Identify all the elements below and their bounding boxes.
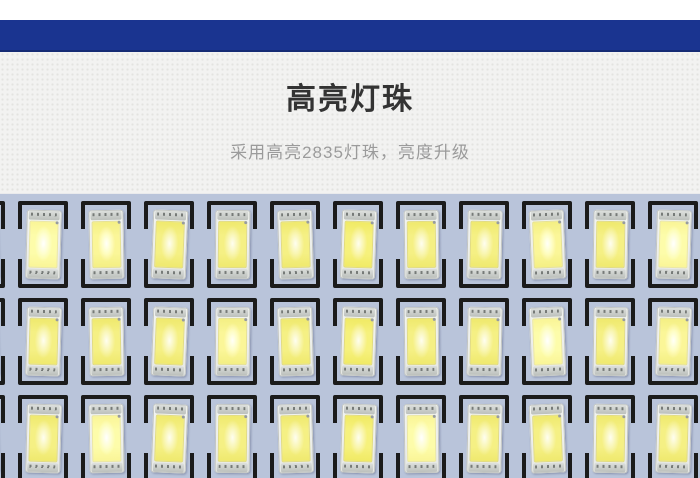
led-phosphor-window	[154, 414, 185, 462]
led-phosphor-window	[217, 221, 246, 268]
headline-section: 高亮灯珠 采用高亮2835灯珠，亮度升级	[0, 52, 700, 193]
silkscreen-gap	[143, 229, 148, 259]
led-bottom-electrode	[216, 366, 247, 375]
silkscreen-gap	[1, 326, 6, 356]
led-chip	[277, 404, 314, 474]
silkscreen-gap	[442, 229, 447, 259]
silkscreen-gap	[127, 326, 132, 356]
product-detail-banner: 高亮灯珠 采用高亮2835灯珠，亮度升级	[0, 0, 700, 478]
led-cell	[522, 201, 572, 288]
led-cell	[459, 395, 509, 478]
led-phosphor-window	[28, 318, 58, 366]
led-phosphor-window	[469, 318, 499, 366]
silkscreen-gap	[64, 229, 69, 259]
led-bottom-electrode	[468, 463, 499, 473]
led-phosphor-window	[28, 415, 58, 463]
silkscreen-gap	[17, 229, 22, 259]
silkscreen-gap	[316, 229, 321, 259]
silkscreen-gap	[316, 423, 321, 453]
led-cell	[270, 298, 320, 385]
led-phosphor-window	[406, 415, 435, 462]
led-cell	[18, 395, 68, 478]
led-cell	[648, 201, 698, 288]
silkscreen-gap	[127, 423, 132, 453]
led-cell	[144, 395, 194, 478]
led-bottom-electrode	[468, 269, 499, 279]
led-polarity-dot	[622, 415, 625, 418]
led-bottom-electrode	[280, 366, 311, 376]
led-top-electrode	[90, 211, 121, 221]
led-top-electrode	[469, 308, 500, 318]
silkscreen-gap	[253, 229, 258, 259]
led-polarity-dot	[370, 318, 373, 321]
led-cell	[396, 298, 446, 385]
led-top-electrode	[658, 211, 689, 221]
silkscreen-gap	[190, 326, 195, 356]
led-chip	[592, 210, 628, 280]
silkscreen-gap	[395, 423, 400, 453]
silkscreen-gap	[631, 326, 636, 356]
silkscreen-gap	[332, 229, 337, 259]
led-polarity-dot	[432, 415, 435, 418]
led-bottom-electrode	[27, 269, 58, 279]
led-top-electrode	[279, 308, 310, 318]
led-top-electrode	[343, 211, 374, 221]
led-cell	[0, 395, 5, 478]
led-top-electrode	[595, 308, 626, 317]
led-phosphor-window	[217, 415, 246, 462]
led-chip	[655, 307, 692, 377]
silkscreen-gap	[64, 423, 69, 453]
led-top-electrode	[530, 404, 561, 414]
led-bottom-electrode	[27, 463, 58, 473]
led-cell	[585, 201, 635, 288]
led-chip	[150, 209, 188, 279]
silkscreen-gap	[458, 423, 463, 453]
led-polarity-dot	[685, 415, 688, 418]
led-cell	[270, 395, 320, 478]
led-cell	[396, 201, 446, 288]
led-bottom-electrode	[91, 463, 122, 473]
page-subtitle: 采用高亮2835灯珠，亮度升级	[230, 143, 470, 163]
led-chip	[25, 307, 62, 377]
led-bottom-electrode	[216, 269, 247, 278]
silkscreen-gap	[206, 423, 211, 453]
led-chip	[277, 307, 314, 377]
silkscreen-gap	[379, 229, 384, 259]
led-cell	[585, 298, 635, 385]
silkscreen-gap	[190, 229, 195, 259]
silkscreen-gap	[584, 326, 589, 356]
led-phosphor-window	[91, 221, 121, 268]
led-polarity-dot	[55, 318, 58, 321]
led-top-electrode	[595, 405, 626, 414]
silkscreen-gap	[505, 423, 510, 453]
led-top-electrode	[28, 211, 59, 221]
led-chip	[528, 403, 566, 473]
led-phosphor-window	[217, 318, 246, 365]
silkscreen-gap	[694, 423, 699, 453]
silkscreen-gap	[442, 326, 447, 356]
silkscreen-gap	[190, 423, 195, 453]
led-chip	[277, 210, 314, 280]
led-cell	[207, 201, 257, 288]
led-polarity-dot	[432, 318, 435, 321]
led-polarity-dot	[558, 220, 561, 223]
led-phosphor-window	[406, 318, 435, 365]
led-bottom-electrode	[657, 463, 688, 473]
silkscreen-gap	[631, 423, 636, 453]
led-cell	[648, 395, 698, 478]
led-phosphor-window	[154, 220, 185, 268]
led-cell	[522, 395, 572, 478]
silkscreen-gap	[253, 423, 258, 453]
led-top-electrode	[279, 211, 310, 221]
led-bottom-electrode	[406, 269, 437, 278]
silkscreen-gap	[584, 229, 589, 259]
led-polarity-dot	[181, 221, 184, 224]
led-top-electrode	[469, 405, 500, 415]
led-bottom-electrode	[532, 462, 563, 472]
led-top-electrode	[405, 211, 436, 220]
led-cell	[522, 298, 572, 385]
silkscreen-gap	[505, 229, 510, 259]
led-chip	[339, 403, 376, 473]
silkscreen-gap	[17, 423, 22, 453]
silkscreen-gap	[521, 423, 526, 453]
led-top-electrode	[658, 405, 689, 415]
silkscreen-gap	[521, 326, 526, 356]
led-polarity-dot	[432, 221, 435, 224]
led-top-electrode	[343, 405, 374, 415]
silkscreen-gap	[206, 326, 211, 356]
led-chip	[403, 307, 439, 376]
led-bottom-electrode	[594, 269, 625, 278]
silkscreen-gap	[458, 229, 463, 259]
led-cell	[0, 298, 5, 385]
led-bottom-electrode	[91, 366, 122, 376]
led-phosphor-window	[280, 221, 310, 269]
led-chip	[150, 403, 188, 473]
led-polarity-dot	[496, 415, 499, 418]
led-bottom-electrode	[468, 366, 499, 376]
led-top-electrode	[154, 307, 185, 317]
led-chip	[214, 307, 250, 376]
led-cell	[396, 395, 446, 478]
led-polarity-dot	[370, 415, 373, 418]
led-phosphor-window	[280, 318, 310, 366]
brand-color-bar	[0, 20, 700, 52]
silkscreen-gap	[568, 326, 573, 356]
silkscreen-gap	[1, 423, 6, 453]
led-chip	[214, 210, 250, 279]
led-polarity-dot	[117, 221, 120, 224]
led-top-electrode	[28, 308, 59, 318]
led-polarity-dot	[244, 415, 247, 418]
led-top-electrode	[154, 210, 185, 220]
led-polarity-dot	[181, 318, 184, 321]
led-chip	[466, 404, 502, 474]
led-bottom-electrode	[594, 366, 625, 375]
led-top-electrode	[530, 210, 561, 220]
led-bottom-electrode	[657, 269, 688, 279]
led-chip	[214, 404, 250, 473]
led-top-electrode	[90, 308, 121, 318]
led-top-electrode	[469, 211, 500, 221]
led-chip	[655, 404, 692, 474]
led-bottom-electrode	[280, 463, 311, 473]
led-polarity-dot	[685, 221, 688, 224]
led-bottom-electrode	[341, 366, 372, 376]
silkscreen-gap	[269, 423, 274, 453]
led-polarity-dot	[370, 221, 373, 224]
led-bottom-electrode	[406, 366, 437, 375]
led-chip	[655, 210, 692, 280]
led-bottom-electrode	[657, 366, 688, 376]
silkscreen-gap	[568, 229, 573, 259]
led-cell	[18, 298, 68, 385]
led-chip	[88, 307, 124, 377]
led-phosphor-window	[154, 317, 185, 365]
led-bottom-electrode	[280, 269, 311, 279]
led-polarity-dot	[496, 221, 499, 224]
led-phosphor-window	[595, 318, 625, 365]
led-top-electrode	[90, 405, 121, 415]
silkscreen-gap	[80, 423, 85, 453]
led-bottom-electrode	[152, 268, 183, 278]
led-bottom-electrode	[594, 463, 625, 472]
led-top-electrode	[595, 211, 626, 220]
silkscreen-gap	[647, 229, 652, 259]
silkscreen-gap	[17, 326, 22, 356]
silkscreen-gap	[458, 326, 463, 356]
led-cell	[207, 395, 257, 478]
led-chip	[88, 210, 124, 280]
silkscreen-gap	[143, 326, 148, 356]
led-polarity-dot	[306, 415, 309, 418]
led-polarity-dot	[558, 414, 561, 417]
led-chip	[528, 306, 566, 376]
led-top-electrode	[530, 307, 561, 317]
led-phosphor-window	[343, 221, 373, 269]
led-polarity-dot	[181, 415, 184, 418]
led-cell	[0, 201, 5, 288]
led-phosphor-window	[28, 221, 58, 269]
silkscreen-gap	[584, 423, 589, 453]
silkscreen-gap	[269, 229, 274, 259]
led-bottom-electrode	[152, 365, 183, 375]
led-bottom-electrode	[341, 463, 372, 473]
led-top-electrode	[154, 404, 185, 414]
led-cell	[144, 298, 194, 385]
led-bottom-electrode	[152, 462, 183, 472]
silkscreen-gap	[1, 229, 6, 259]
silkscreen-gap	[379, 326, 384, 356]
led-polarity-dot	[55, 221, 58, 224]
led-top-electrode	[279, 405, 310, 415]
led-polarity-dot	[622, 318, 625, 321]
led-cell	[459, 298, 509, 385]
top-white-strip	[0, 0, 700, 20]
led-polarity-dot	[306, 221, 309, 224]
led-bottom-electrode	[532, 268, 563, 278]
led-polarity-dot	[496, 318, 499, 321]
led-cell	[81, 298, 131, 385]
led-phosphor-window	[595, 415, 625, 462]
led-chip	[88, 404, 124, 474]
silkscreen-gap	[269, 326, 274, 356]
led-polarity-dot	[244, 318, 247, 321]
page-title: 高亮灯珠	[286, 83, 414, 117]
led-chip	[25, 404, 62, 474]
led-polarity-dot	[55, 415, 58, 418]
silkscreen-gap	[395, 229, 400, 259]
silkscreen-gap	[521, 229, 526, 259]
led-bottom-electrode	[532, 365, 563, 375]
led-chip	[339, 306, 376, 376]
led-polarity-dot	[622, 221, 625, 224]
silkscreen-gap	[206, 229, 211, 259]
led-phosphor-window	[658, 318, 688, 366]
led-top-electrode	[217, 405, 248, 414]
led-bottom-electrode	[406, 463, 437, 472]
led-cell	[459, 201, 509, 288]
led-phosphor-window	[469, 415, 499, 463]
silkscreen-gap	[332, 326, 337, 356]
led-top-electrode	[217, 211, 248, 220]
led-bottom-electrode	[91, 269, 122, 279]
led-bottom-electrode	[341, 269, 372, 279]
led-polarity-dot	[117, 415, 120, 418]
led-polarity-dot	[558, 317, 561, 320]
led-phosphor-window	[658, 221, 688, 269]
silkscreen-gap	[442, 423, 447, 453]
led-top-electrode	[28, 405, 59, 415]
led-top-electrode	[658, 308, 689, 318]
led-polarity-dot	[244, 221, 247, 224]
led-cell	[648, 298, 698, 385]
led-cell	[81, 395, 131, 478]
led-chip	[592, 307, 628, 377]
led-phosphor-window	[343, 415, 373, 463]
led-chip	[25, 210, 62, 280]
led-phosphor-window	[91, 318, 121, 365]
silkscreen-gap	[694, 229, 699, 259]
led-cell	[81, 201, 131, 288]
led-phosphor-window	[406, 221, 435, 268]
led-cell	[18, 201, 68, 288]
silkscreen-gap	[64, 326, 69, 356]
silkscreen-gap	[143, 423, 148, 453]
silkscreen-gap	[647, 423, 652, 453]
led-chip	[150, 306, 188, 376]
silkscreen-gap	[316, 326, 321, 356]
led-cell	[333, 201, 383, 288]
silkscreen-gap	[631, 229, 636, 259]
led-phosphor-window	[532, 414, 563, 462]
silkscreen-gap	[568, 423, 573, 453]
led-top-electrode	[405, 308, 436, 317]
led-phosphor-window	[343, 318, 373, 366]
led-phosphor-window	[280, 415, 310, 463]
led-cell	[270, 201, 320, 288]
led-chip	[403, 404, 439, 473]
led-cell	[333, 395, 383, 478]
silkscreen-gap	[332, 423, 337, 453]
led-bottom-electrode	[216, 463, 247, 472]
silkscreen-gap	[253, 326, 258, 356]
silkscreen-gap	[505, 326, 510, 356]
led-phosphor-window	[595, 221, 625, 268]
led-chip	[592, 404, 628, 474]
led-phosphor-window	[658, 415, 688, 463]
led-phosphor-window	[469, 221, 499, 269]
led-phosphor-window	[91, 415, 121, 462]
silkscreen-gap	[80, 229, 85, 259]
silkscreen-gap	[379, 423, 384, 453]
led-cell	[207, 298, 257, 385]
product-photo	[0, 193, 700, 478]
led-top-electrode	[217, 308, 248, 317]
led-chip	[528, 209, 566, 279]
led-chip	[403, 210, 439, 279]
led-polarity-dot	[306, 318, 309, 321]
silkscreen-gap	[647, 326, 652, 356]
silkscreen-gap	[694, 326, 699, 356]
led-chip	[466, 210, 502, 280]
silkscreen-gap	[80, 326, 85, 356]
led-cell	[144, 201, 194, 288]
led-polarity-dot	[117, 318, 120, 321]
led-cell	[333, 298, 383, 385]
led-bottom-electrode	[27, 366, 58, 376]
led-chip	[339, 209, 376, 279]
led-chip	[466, 307, 502, 377]
led-top-electrode	[405, 405, 436, 414]
led-cell	[585, 395, 635, 478]
led-phosphor-window	[532, 317, 563, 365]
led-top-electrode	[343, 308, 374, 318]
led-phosphor-window	[532, 220, 563, 268]
silkscreen-gap	[127, 229, 132, 259]
silkscreen-gap	[395, 326, 400, 356]
led-polarity-dot	[685, 318, 688, 321]
